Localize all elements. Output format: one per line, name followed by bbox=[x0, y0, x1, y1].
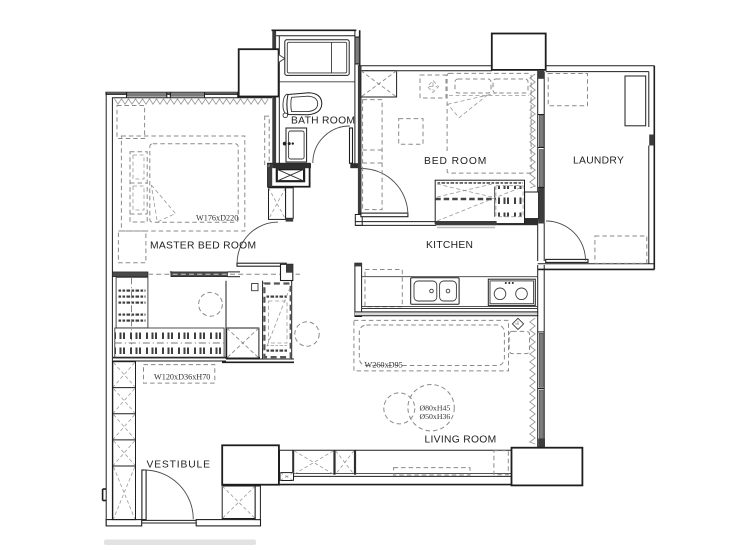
svg-text:LIVING ROOM: LIVING ROOM bbox=[425, 435, 497, 446]
svg-text:KITCHEN: KITCHEN bbox=[426, 240, 473, 251]
svg-text:W120xD36xH70: W120xD36xH70 bbox=[154, 373, 210, 382]
svg-text:VESTIBULE: VESTIBULE bbox=[147, 460, 211, 471]
svg-text:BED ROOM: BED ROOM bbox=[424, 156, 487, 167]
svg-text:W260xD95: W260xD95 bbox=[365, 361, 403, 370]
svg-text:W176xD220: W176xD220 bbox=[196, 214, 238, 223]
svg-text:Ø50xH36: Ø50xH36 bbox=[420, 412, 451, 421]
svg-text:BATH ROOM: BATH ROOM bbox=[291, 116, 355, 127]
svg-text:MASTER BED ROOM: MASTER BED ROOM bbox=[150, 241, 256, 252]
svg-text:LAUNDRY: LAUNDRY bbox=[573, 156, 624, 167]
